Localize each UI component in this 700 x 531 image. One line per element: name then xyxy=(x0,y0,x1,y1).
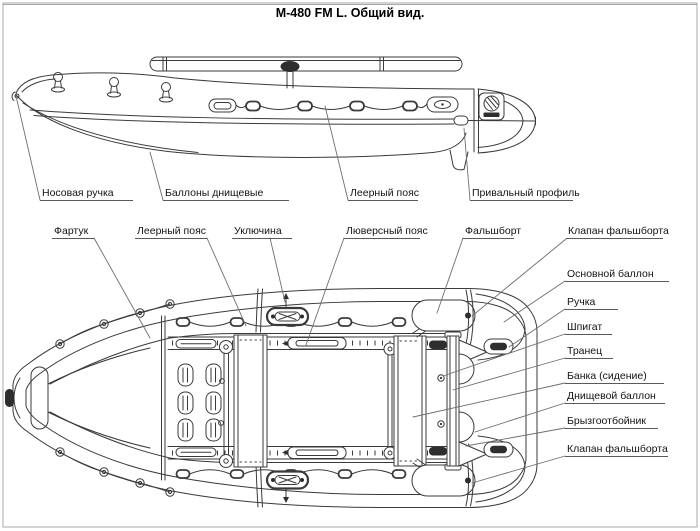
floor-slats xyxy=(178,364,224,441)
bow-handle-icon xyxy=(12,92,19,101)
front-bench xyxy=(220,335,268,468)
deck-fittings xyxy=(52,73,173,103)
label-apron: Фартук xyxy=(52,225,94,239)
oarlock-bottom-icon xyxy=(267,472,308,504)
label-transom: Транец xyxy=(565,345,613,359)
label-rail-belt-top: Леерный пояс xyxy=(135,225,207,239)
top-view-drawing xyxy=(5,289,537,508)
label-grommet-belt: Люверсный пояс xyxy=(344,225,420,239)
rub-rail-profile xyxy=(30,110,536,125)
label-scupper: Шпигат xyxy=(565,321,612,335)
label-rub-rail-profile: Привальный профиль xyxy=(470,187,573,201)
bulwark-valve-top-icon xyxy=(465,313,471,319)
label-bulwark-valve-top: Клапан фальшборта xyxy=(566,225,663,239)
bulwark-strip xyxy=(150,57,462,88)
rail-belt-side xyxy=(209,97,458,112)
label-bottom-cylinder: Днищевой баллон xyxy=(565,390,665,404)
apron xyxy=(14,316,165,480)
label-oarlock: Уключина xyxy=(232,225,292,239)
bulwark-valve-bottom-icon xyxy=(465,478,471,484)
label-handle: Ручка xyxy=(565,296,618,310)
oarlock-top-icon xyxy=(267,293,308,325)
label-rail-belt-side: Леерный пояс xyxy=(348,187,418,201)
brand-badge-icon xyxy=(479,93,504,120)
transom xyxy=(445,332,487,470)
label-bulwark-valve-bottom: Клапан фальшборта xyxy=(565,443,668,457)
scupper-icons xyxy=(438,375,444,427)
label-main-cylinder: Основной баллон xyxy=(565,268,669,282)
label-bulwark: Фальшборт xyxy=(463,225,514,239)
label-bow-handle: Носовая ручка xyxy=(40,187,133,201)
bow-grommets xyxy=(56,300,174,496)
label-bench-seat: Банка (сидение) xyxy=(565,370,664,384)
oarlock-side-icon xyxy=(281,61,300,72)
label-bottom-cylinders: Баллоны днищевые xyxy=(163,187,289,201)
side-view-drawing xyxy=(12,57,535,170)
spray-deflectors xyxy=(459,354,474,442)
page-title: М-480 FM L. Общий вид. xyxy=(0,6,700,20)
skeg xyxy=(450,150,468,170)
bow-handle-top-icon xyxy=(5,389,14,407)
stern-tube-ends xyxy=(412,290,525,506)
diagram-page: { "title": "М-480 FM L. Общий вид.", "la… xyxy=(0,0,700,531)
label-spray-deflector: Брызгоотбойник xyxy=(565,415,658,429)
